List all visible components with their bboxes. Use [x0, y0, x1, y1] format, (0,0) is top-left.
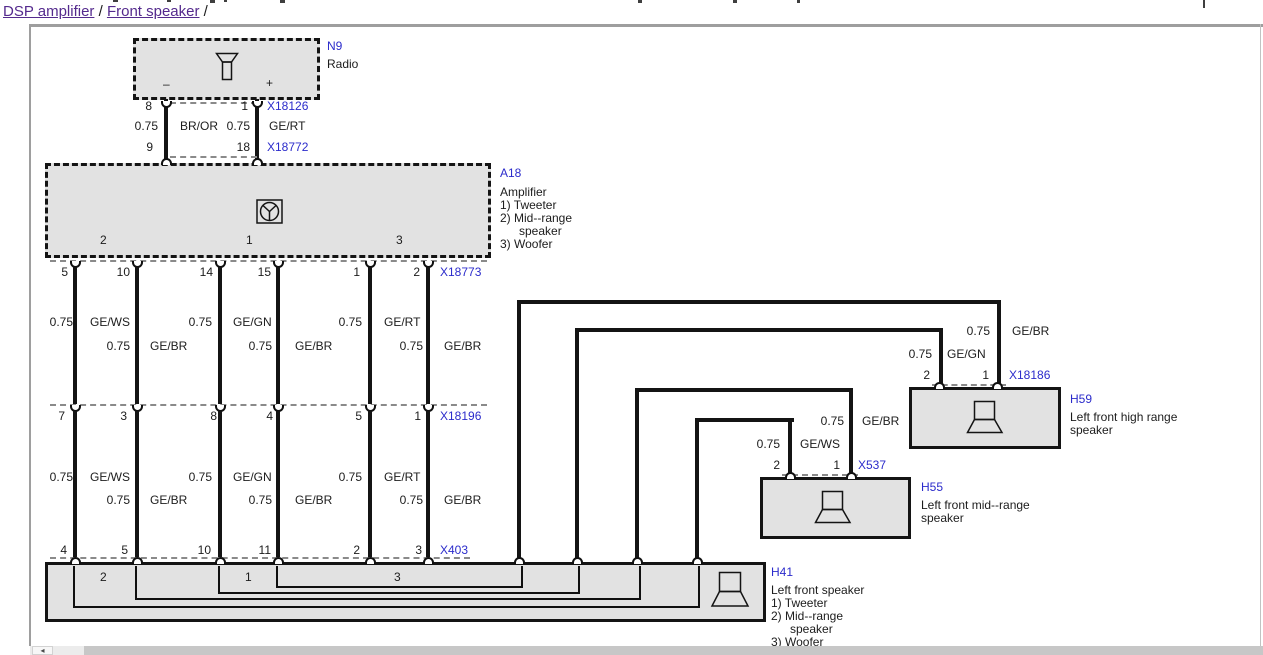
pin-number: 3 [394, 544, 422, 556]
connector-socket [934, 382, 945, 389]
wire-color-code: GE/BR [295, 340, 332, 352]
wire [368, 411, 372, 557]
component-id-h59: H59 [1070, 393, 1092, 405]
cut-text-fragment [797, 0, 800, 3]
pin-number: 14 [185, 266, 213, 278]
wire-color-code: GE/RT [269, 120, 305, 132]
wire-gauge: 0.75 [45, 471, 73, 483]
wire [426, 267, 430, 404]
wire-color-code: GE/BR [1012, 325, 1049, 337]
pin-number: 5 [100, 544, 128, 556]
wire-gauge: 0.75 [45, 316, 73, 328]
wire-color-code: GE/BR [150, 494, 187, 506]
wire-gauge: 0.75 [752, 438, 780, 450]
cut-text-fragment [210, 0, 215, 3]
wire-gauge: 0.75 [395, 340, 423, 352]
cut-text-fragment [638, 0, 642, 3]
breadcrumb-link-front-speaker[interactable]: Front speaker [107, 3, 200, 20]
pin-number: 5 [334, 410, 362, 422]
breadcrumb: DSP amplifier / Front speaker / [3, 2, 208, 21]
wire-color-code: GE/GN [233, 471, 272, 483]
connector-socket [992, 382, 1003, 389]
wire [575, 330, 579, 558]
horizontal-scrollbar[interactable]: ◂ [30, 646, 1263, 655]
legend-line: 2) Mid--range [500, 212, 572, 224]
connector-id-x18186: X18186 [1009, 369, 1050, 381]
connector-line-x18772 [170, 156, 257, 158]
connector-id-x537: X537 [858, 459, 886, 471]
legend-line: 1) Tweeter [500, 199, 556, 211]
wire [635, 388, 853, 392]
wire-gauge: 0.75 [395, 494, 423, 506]
connector-socket [632, 557, 643, 564]
pin-number: 18 [222, 141, 250, 153]
wire [218, 267, 222, 404]
pin-number: 1 [220, 100, 248, 112]
wire [517, 302, 521, 558]
pin-number: 8 [124, 100, 152, 112]
component-name-h41: Left front speaker [771, 584, 864, 596]
connector-fork [252, 101, 263, 108]
connector-id-x18773: X18773 [440, 266, 481, 278]
scroll-left-icon: ◂ [33, 647, 52, 654]
wire-gauge: 0.75 [334, 316, 362, 328]
wire-gauge: 0.75 [184, 316, 212, 328]
cut-text-fragment [733, 0, 737, 3]
cut-text-fragment [224, 0, 227, 2]
frame-right-border [1260, 24, 1261, 646]
wire-gauge: 0.75 [244, 340, 272, 352]
wire-gauge: 0.75 [102, 340, 130, 352]
connector-socket [785, 472, 796, 479]
connector-socket [692, 557, 703, 564]
wire-gauge: 0.75 [816, 415, 844, 427]
legend-line: 2) Mid--range [771, 610, 843, 622]
zone-label: 3 [394, 570, 401, 584]
wire-color-code: GE/WS [90, 471, 130, 483]
wire [517, 300, 1001, 304]
component-id-h41: H41 [771, 566, 793, 578]
pin-number: 5 [40, 266, 68, 278]
wire [368, 267, 372, 404]
wire-color-code: GE/BR [444, 494, 481, 506]
connector-socket [161, 158, 172, 165]
wire [997, 300, 1001, 384]
breadcrumb-separator: / [94, 3, 107, 20]
pin-number: 3 [99, 410, 127, 422]
wire [575, 328, 943, 332]
pin-number: 9 [125, 141, 153, 153]
wire-n9-plus [255, 99, 259, 163]
zone-label: 1 [246, 233, 253, 247]
connector-socket [365, 557, 376, 564]
speaker-cone-icon [215, 52, 239, 82]
wire-color-code: GE/GN [947, 348, 986, 360]
breadcrumb-tail: / [199, 3, 207, 20]
scroll-left-button[interactable]: ◂ [32, 646, 53, 655]
polarity-plus-label: + [266, 77, 273, 89]
connector-line-x18773 [50, 260, 487, 262]
pin-number: 8 [189, 410, 217, 422]
connector-socket [70, 557, 81, 564]
wire [849, 388, 853, 474]
wire [695, 420, 699, 558]
cut-text-fragment [280, 0, 285, 3]
zone-label: 1 [245, 570, 252, 584]
pin-number: 4 [245, 410, 273, 422]
frame-top-border [30, 24, 1263, 27]
pin-number: 1 [332, 266, 360, 278]
wire [73, 267, 77, 404]
wire [695, 418, 794, 422]
component-id-a18: A18 [500, 167, 521, 179]
connector-id-x18196: X18196 [440, 410, 481, 422]
pin-number: 11 [243, 544, 271, 556]
connector-socket [572, 557, 583, 564]
connector-socket [252, 158, 263, 165]
speaker-icon [814, 490, 852, 525]
legend-line: 1) Tweeter [771, 597, 827, 609]
wire [635, 390, 639, 558]
connector-id-x18126: X18126 [267, 100, 308, 112]
component-name-h59-line2: speaker [1070, 424, 1113, 436]
legend-line: speaker [519, 225, 562, 237]
wire-color-code: GE/BR [150, 340, 187, 352]
wire [135, 267, 139, 404]
wire [276, 411, 280, 557]
wiring-diagram-page: DSP amplifier / Front speaker / – + N9 R… [0, 0, 1263, 655]
component-id-n9: N9 [327, 40, 342, 52]
cut-text-fragment [1203, 0, 1205, 8]
frame-left-border [29, 24, 31, 646]
pin-number: 2 [392, 266, 420, 278]
wire-color-code: GE/BR [444, 340, 481, 352]
component-name-h59: Left front high range [1070, 411, 1177, 423]
wire-n9-minus [164, 99, 168, 163]
breadcrumb-link-dsp-amplifier[interactable]: DSP amplifier [3, 3, 94, 20]
pin-number: 4 [39, 544, 67, 556]
wire-gauge: 0.75 [904, 348, 932, 360]
component-name-radio: Radio [327, 58, 358, 70]
connector-fork [161, 101, 172, 108]
connector-id-x403: X403 [440, 544, 468, 556]
wire-color-code: GE/BR [862, 415, 899, 427]
connector-socket [846, 472, 857, 479]
connector-id-x18772: X18772 [267, 141, 308, 153]
wire-color-code: GE/WS [800, 438, 840, 450]
wire [218, 411, 222, 557]
wire [276, 267, 280, 404]
wire [788, 418, 792, 474]
connector-line-x18196 [50, 404, 487, 406]
component-name-h55: Left front mid--range [921, 499, 1030, 511]
wire-color-code: GE/RT [384, 316, 420, 328]
connector-socket [514, 557, 525, 564]
pin-number: 2 [752, 459, 780, 471]
wire-color-code: GE/BR [295, 494, 332, 506]
amplifier-icon [256, 199, 284, 225]
connector-socket [273, 557, 284, 564]
wire-gauge: 0.75 [222, 120, 250, 132]
zone-label: 2 [100, 233, 107, 247]
legend-line: 3) Woofer [500, 238, 552, 250]
pin-number: 1 [961, 369, 989, 381]
component-id-h55: H55 [921, 481, 943, 493]
pin-number: 1 [812, 459, 840, 471]
legend-line: speaker [790, 623, 833, 635]
wire-gauge: 0.75 [184, 471, 212, 483]
pin-number: 2 [902, 369, 930, 381]
wire [939, 328, 943, 384]
zone-label: 2 [100, 570, 107, 584]
wire-color-code: GE/GN [233, 316, 272, 328]
component-name-amplifier: Amplifier [500, 186, 547, 198]
scrollbar-thumb[interactable] [84, 646, 1263, 655]
pin-number: 10 [102, 266, 130, 278]
speaker-icon [966, 400, 1004, 435]
wire-gauge: 0.75 [334, 471, 362, 483]
component-name-h55-line2: speaker [921, 512, 964, 524]
pin-number: 2 [332, 544, 360, 556]
connector-socket [132, 557, 143, 564]
pin-number: 1 [393, 410, 421, 422]
pin-number: 7 [37, 410, 65, 422]
connector-socket [215, 557, 226, 564]
wire-color-code: GE/WS [90, 316, 130, 328]
speaker-icon [710, 571, 750, 609]
wire-color-code: GE/RT [384, 471, 420, 483]
wire [73, 411, 77, 557]
wire-color-code: BR/OR [180, 120, 218, 132]
wire-gauge: 0.75 [244, 494, 272, 506]
wire-gauge: 0.75 [130, 120, 158, 132]
wire [426, 411, 430, 557]
wire [135, 411, 139, 557]
wire-gauge: 0.75 [102, 494, 130, 506]
polarity-minus-label: – [163, 78, 170, 90]
zone-label: 3 [396, 233, 403, 247]
connector-line-x403 [50, 557, 470, 559]
pin-number: 10 [183, 544, 211, 556]
pin-number: 15 [243, 266, 271, 278]
connector-socket [423, 557, 434, 564]
wire-gauge: 0.75 [962, 325, 990, 337]
